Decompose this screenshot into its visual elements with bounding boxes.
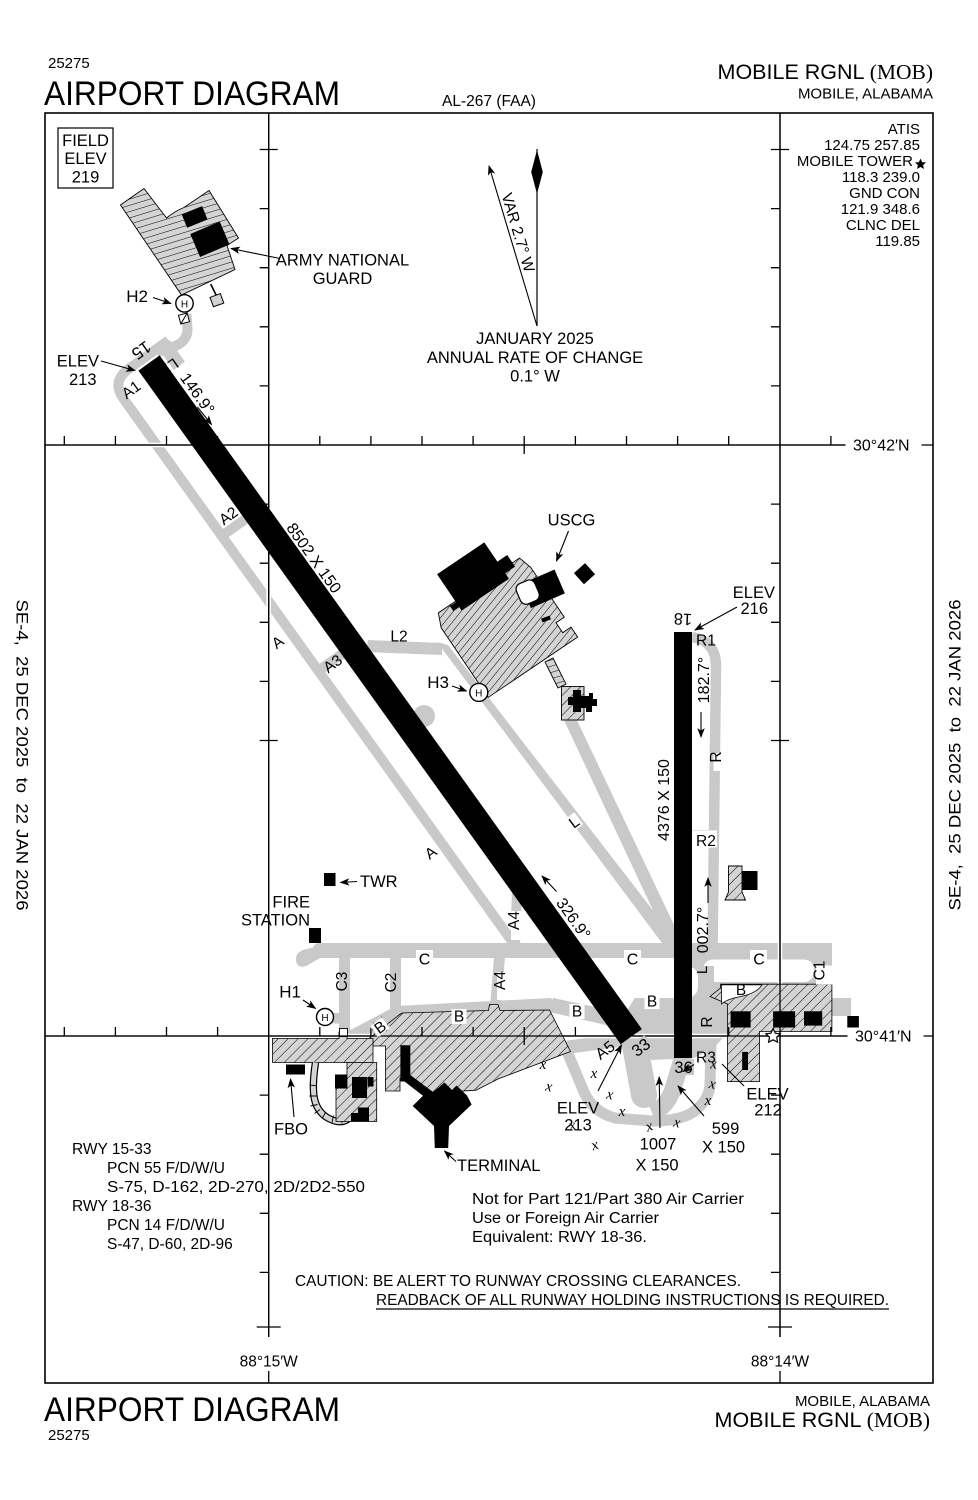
svg-text:118.3 239.0: 118.3 239.0 [842, 169, 920, 186]
svg-text:TERMINAL: TERMINAL [457, 1157, 540, 1175]
svg-text:x: x [590, 1066, 598, 1082]
svg-text:AIRPORT DIAGRAM: AIRPORT DIAGRAM [44, 75, 340, 113]
svg-text:FIELD: FIELD [62, 132, 109, 150]
svg-text:212: 212 [754, 1102, 782, 1120]
svg-text:18: 18 [673, 609, 692, 628]
svg-text:GUARD: GUARD [313, 270, 373, 288]
svg-text:S-47, D-60, 2D-96: S-47, D-60, 2D-96 [107, 1236, 233, 1253]
svg-text:B: B [647, 994, 657, 1011]
svg-text:FBO: FBO [274, 1121, 308, 1139]
svg-text:ELEV: ELEV [64, 150, 106, 168]
svg-text:C: C [753, 952, 765, 969]
svg-text:R1: R1 [696, 633, 716, 650]
svg-text:ANNUAL RATE OF CHANGE: ANNUAL RATE OF CHANGE [427, 349, 643, 367]
svg-text:216: 216 [740, 600, 768, 618]
svg-text:25275: 25275 [48, 1427, 90, 1444]
svg-text:88°15′W: 88°15′W [240, 1354, 299, 1371]
svg-text:A4: A4 [506, 911, 523, 930]
svg-text:PCN 55 F/D/W/U: PCN 55 F/D/W/U [107, 1160, 225, 1177]
svg-text:Use or Foreign Air Carrier: Use or Foreign Air Carrier [472, 1210, 659, 1227]
svg-text:C1: C1 [812, 961, 829, 981]
svg-text:L: L [694, 966, 711, 974]
svg-text:MOBILE RGNL (MOB): MOBILE RGNL (MOB) [715, 1408, 930, 1432]
svg-text:USCG: USCG [548, 512, 596, 530]
svg-text:MOBILE RGNL (MOB): MOBILE RGNL (MOB) [718, 60, 933, 84]
svg-text:H: H [321, 1013, 328, 1024]
svg-text:599: 599 [712, 1120, 740, 1138]
svg-text:AL-267 (FAA): AL-267 (FAA) [442, 93, 536, 110]
svg-text:H2: H2 [126, 287, 148, 306]
svg-text:0.1° W: 0.1° W [510, 368, 560, 386]
svg-text:GND CON: GND CON [849, 185, 920, 202]
svg-text:B: B [736, 982, 746, 999]
svg-text:CLNC DEL: CLNC DEL [846, 217, 920, 234]
svg-text:RWY 15-33: RWY 15-33 [72, 1141, 152, 1158]
svg-text:SE-4, 25 DEC 2025 to 22 JAN: SE-4, 25 DEC 2025 to 22 JAN 2026 [13, 600, 32, 911]
svg-text:B: B [454, 1009, 464, 1026]
svg-text:ARMY NATIONAL: ARMY NATIONAL [276, 252, 409, 270]
svg-text:213: 213 [69, 371, 97, 389]
svg-text:L2: L2 [390, 629, 407, 646]
svg-text:RWY 18-36: RWY 18-36 [72, 1198, 152, 1215]
svg-text:30°41′N: 30°41′N [855, 1029, 912, 1046]
svg-text:C: C [627, 952, 639, 969]
svg-text:A4: A4 [492, 971, 509, 990]
svg-text:119.85: 119.85 [875, 233, 920, 250]
svg-text:x: x [709, 1057, 717, 1073]
svg-text:X 150: X 150 [702, 1139, 745, 1157]
svg-text:25275: 25275 [48, 55, 90, 72]
svg-text:FIRE: FIRE [272, 894, 310, 912]
svg-text:219: 219 [72, 169, 100, 187]
svg-text:x: x [704, 1093, 712, 1109]
svg-text:4376 X 150: 4376 X 150 [656, 759, 673, 841]
svg-text:x: x [618, 1104, 626, 1120]
svg-text:B: B [572, 1004, 582, 1021]
svg-text:R2: R2 [696, 833, 716, 850]
svg-text:Not for Part 121/Part 380 Air: Not for Part 121/Part 380 Air Carrier [472, 1191, 744, 1208]
svg-text:H: H [181, 299, 188, 310]
svg-text:Equivalent: RWY 18-36.: Equivalent: RWY 18-36. [472, 1229, 647, 1246]
svg-text:S-75, D-162, 2D-270, 2D/2D2-55: S-75, D-162, 2D-270, 2D/2D2-550 [107, 1179, 365, 1196]
svg-text:ATIS: ATIS [888, 121, 920, 138]
svg-text:ELEV: ELEV [557, 1100, 599, 1118]
svg-text:PCN 14 F/D/W/U: PCN 14 F/D/W/U [107, 1217, 225, 1234]
svg-text:MOBILE TOWER: MOBILE TOWER [797, 153, 913, 170]
svg-text:ELEV: ELEV [57, 353, 99, 371]
svg-text:H1: H1 [279, 983, 301, 1002]
svg-text:JANUARY 2025: JANUARY 2025 [476, 330, 594, 348]
svg-text:AIRPORT DIAGRAM: AIRPORT DIAGRAM [44, 1391, 340, 1429]
svg-text:TWR: TWR [360, 873, 398, 891]
svg-text:C2: C2 [383, 973, 400, 993]
svg-text:88°14′W: 88°14′W [751, 1354, 810, 1371]
svg-text:MOBILE, ALABAMA: MOBILE, ALABAMA [798, 86, 933, 103]
svg-text:H: H [475, 688, 482, 699]
svg-text:124.75 257.85: 124.75 257.85 [824, 137, 920, 154]
svg-text:x: x [539, 1057, 547, 1073]
svg-text:36: 36 [674, 1059, 692, 1077]
svg-text:READBACK OF ALL RUNWAY HOLDING: READBACK OF ALL RUNWAY HOLDING INSTRUCTI… [376, 1292, 889, 1309]
svg-text:SE-4, 25 DEC 2025 to 22 JAN: SE-4, 25 DEC 2025 to 22 JAN 2026 [946, 600, 965, 911]
svg-text:STATION: STATION [241, 912, 310, 930]
svg-text:C: C [419, 952, 431, 969]
svg-text:121.9 348.6: 121.9 348.6 [841, 201, 920, 218]
svg-text:X 150: X 150 [635, 1157, 678, 1175]
svg-text:002.7°: 002.7° [695, 907, 712, 953]
svg-text:CAUTION: BE ALERT TO RUNWAY CR: CAUTION: BE ALERT TO RUNWAY CROSSING CLE… [295, 1273, 741, 1290]
svg-text:C3: C3 [334, 972, 351, 992]
svg-text:182.7°: 182.7° [696, 657, 713, 703]
svg-text:R: R [699, 1016, 716, 1027]
svg-text:30°42′N: 30°42′N [853, 438, 910, 455]
svg-text:R: R [708, 751, 725, 762]
svg-text:1007: 1007 [640, 1136, 677, 1154]
svg-text:H3: H3 [427, 673, 449, 692]
